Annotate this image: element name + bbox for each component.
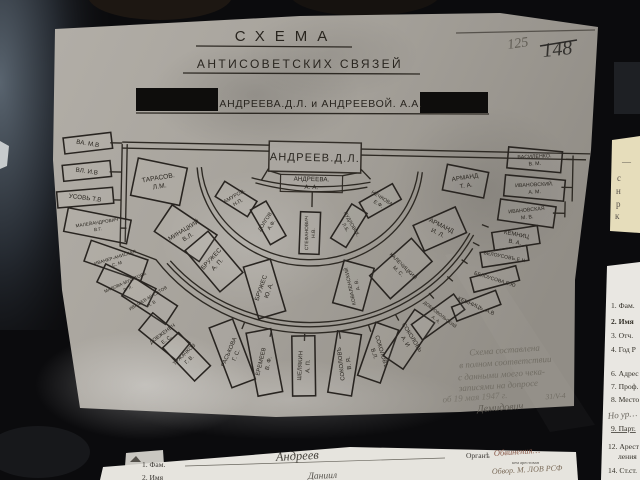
svg-text:АНДРЕЕВ.Д.Л.: АНДРЕЕВ.Д.Л. xyxy=(270,151,361,165)
svg-text:2. Имя: 2. Имя xyxy=(611,317,634,326)
svg-text:М. В.: М. В. xyxy=(521,214,534,221)
svg-text:31/V-4: 31/V-4 xyxy=(544,391,566,401)
svg-text:с: с xyxy=(617,173,621,183)
svg-text:к: к xyxy=(615,211,620,221)
svg-text:АНТИСОВЕТСКИХ СВЯЗЕЙ: АНТИСОВЕТСКИХ СВЯЗЕЙ xyxy=(197,56,403,71)
svg-text:2. Имя: 2. Имя xyxy=(142,473,164,480)
svg-text:7. Проф.: 7. Проф. xyxy=(611,382,639,391)
svg-text:р: р xyxy=(616,199,621,209)
svg-text:А. П.: А. П. xyxy=(305,359,312,373)
svg-text:н: н xyxy=(616,186,621,196)
svg-text:8. Место: 8. Место xyxy=(611,395,639,404)
svg-text:А. М.: А. М. xyxy=(528,189,541,196)
svg-text:СТЕФАНОВИЧ: СТЕФАНОВИЧ xyxy=(304,216,310,250)
svg-text:АНДРЕЕВА.: АНДРЕЕВА. xyxy=(294,176,330,184)
svg-text:125: 125 xyxy=(506,35,529,53)
svg-text:Даниил: Даниил xyxy=(307,471,337,480)
svg-text:—: — xyxy=(621,157,632,167)
svg-text:1. Фам.: 1. Фам. xyxy=(142,460,166,469)
svg-text:СХЕМА: СХЕМА xyxy=(235,28,338,45)
svg-text:1. Фам.: 1. Фам. xyxy=(611,301,635,310)
svg-text:9. Парт.: 9. Парт. xyxy=(611,424,636,433)
svg-text:А. А.: А. А. xyxy=(304,184,318,191)
svg-text:ления: ления xyxy=(618,452,637,461)
svg-text:Н.В.: Н.В. xyxy=(311,228,317,238)
svg-text:АНДРЕЕВА.Д.Л. и АНДРЕЕВОЙ. А.А: АНДРЕЕВА.Д.Л. и АНДРЕЕВОЙ. А.А. xyxy=(219,97,422,110)
svg-text:Органѣ: Органѣ xyxy=(466,451,490,460)
svg-text:3. Отч.: 3. Отч. xyxy=(611,331,633,340)
svg-text:14. Ст.ст.: 14. Ст.ст. xyxy=(608,466,637,475)
svg-text:12. Арест: 12. Арест xyxy=(608,442,640,451)
svg-text:Андреев: Андреев xyxy=(274,448,319,464)
svg-text:4. Год Р: 4. Год Р xyxy=(611,345,636,354)
svg-text:6. Адрес: 6. Адрес xyxy=(611,369,639,378)
svg-text:В. М.: В. М. xyxy=(528,161,541,168)
